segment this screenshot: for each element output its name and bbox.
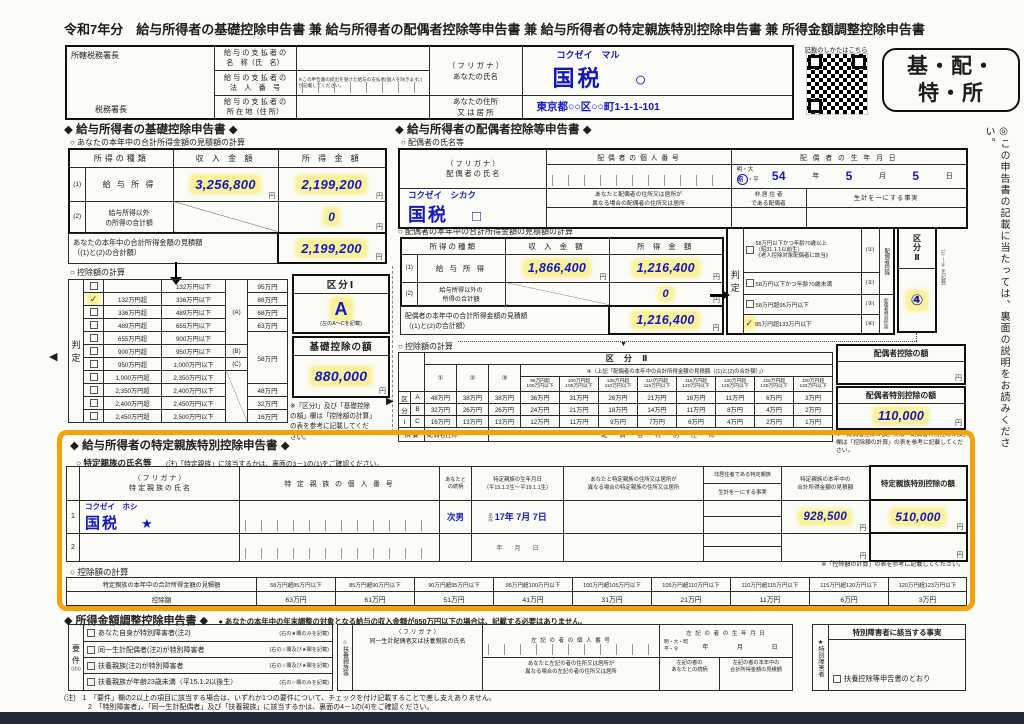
sub-range: 130万円超 133万円以下 bbox=[794, 377, 833, 392]
day-label: 日 bbox=[946, 171, 953, 181]
tokutei-address-field[interactable] bbox=[564, 500, 704, 533]
requirement-row-0[interactable]: あなた自身が特別障害者(注2)(右の★欄のみを記載) bbox=[84, 625, 333, 642]
tokutei-nonresident-field-2[interactable] bbox=[704, 533, 782, 561]
col-revenue: 収 入 金 額 bbox=[173, 149, 278, 167]
basic-judgment-checkbox-5[interactable] bbox=[84, 345, 104, 358]
tokutei-name: 国税 bbox=[85, 515, 119, 532]
amount: 6万円 bbox=[810, 592, 889, 606]
basic-salary-revenue[interactable]: 3,256,800円 bbox=[173, 167, 278, 201]
form-title: 令和7年分 給与所得者の基礎控除申告書 兼 給与所得者の配偶者控除等申告書 兼 … bbox=[64, 19, 1014, 38]
tokutei-income-header: 特定親族の本年中の 合計所得金額の見積額 bbox=[782, 466, 870, 500]
spouse-other-income[interactable]: 0円 bbox=[609, 282, 723, 306]
summary-spouse-special-deduction: 配 偶 者 特 別 控 除 bbox=[489, 428, 833, 442]
basic-salary-income[interactable]: 2,199,200円 bbox=[278, 167, 386, 201]
check-mark: ✓ bbox=[89, 294, 99, 304]
spouse-mynumber-field[interactable] bbox=[546, 164, 731, 188]
adjust-requirements-table: 要 件(注1) あなた自身が特別障害者(注2)(右の★欄のみを記載) 同一生計配… bbox=[68, 624, 333, 691]
spouse-salary-revenue[interactable]: 1,866,400円 bbox=[505, 254, 609, 282]
payer-number-label: 給 与 の 支 払 者 の 法 人 番 号 bbox=[214, 70, 296, 95]
section-divider bbox=[392, 266, 393, 432]
tax-office-bottom-label: 税務署長 bbox=[95, 104, 127, 115]
your-name-label: （ フ リ ガ ナ ） あなたの氏名 bbox=[429, 46, 522, 95]
kubun1-note: (左のA～Cを記載) bbox=[294, 320, 388, 327]
spouse-salary-income[interactable]: 1,216,400円 bbox=[609, 254, 723, 282]
spouse-name-label: （ フ リ ガ ナ ） 配 偶 者 の 氏 名 bbox=[399, 149, 546, 188]
row-number: 1 bbox=[67, 500, 80, 533]
tokutei-relation-field-2[interactable] bbox=[440, 533, 472, 561]
row-number-col bbox=[67, 466, 80, 500]
basic-deduction-field[interactable]: 880,000円 bbox=[293, 355, 389, 397]
spouse-judgment-checkbox-2 bbox=[746, 300, 754, 308]
yen-unit: 円 bbox=[376, 222, 383, 232]
spouse-section-title: ◆ 給与所得者の配偶者控除等申告書 ◆ bbox=[395, 121, 592, 137]
amount: 16万円 bbox=[248, 410, 288, 423]
mynumber-ticks bbox=[488, 644, 654, 655]
sub-range: 95万円超 100万円以下 bbox=[521, 377, 560, 392]
req-note-label: (注1) bbox=[71, 666, 80, 672]
col-2: ② bbox=[457, 365, 489, 392]
row-key-B: B bbox=[411, 404, 425, 416]
header-table: 所轄税務署長 税務署長 給 与 の 支 払 者 の 名 称（氏 名） （ フ リ… bbox=[65, 45, 794, 120]
range-lo: 900万円超 bbox=[104, 345, 162, 358]
down-arrow: ▼ bbox=[620, 341, 627, 348]
range: 120万円超123万円以下 bbox=[889, 578, 967, 592]
cell: 11万円 bbox=[677, 404, 716, 416]
basic-total-row: あなたの本年中の合計所得金額の見積額 （(1)と(2)の合計額） 2,199,2… bbox=[68, 232, 387, 264]
basic-deduction-title: 基礎控除の額 bbox=[293, 337, 389, 355]
amount: 63万円 bbox=[248, 319, 288, 332]
range-lo bbox=[104, 280, 162, 293]
spouse-judgment-row-3[interactable]: ✓95万円超133万円以下 bbox=[743, 314, 861, 334]
tokutei-calc-table: 特定親族の本年中の合計所得金額の見積額 58万円超85万円以下85万円超90万円… bbox=[66, 577, 967, 606]
tokutei-table: （ フ リ ガ ナ ） 特 定 親 族 の 氏 名 特 定 親 族 の 個 人 … bbox=[66, 465, 968, 562]
row-group-label: 区 bbox=[399, 392, 411, 404]
spouse-income-table: 所得の種類 収 入 金 額 所 得 金 額 (1) 給 与 所 得 1,866,… bbox=[400, 237, 724, 307]
cell: 21万円 bbox=[638, 392, 677, 404]
tax-office-top-label: 所轄税務署長 bbox=[71, 50, 119, 61]
dependent-address-field[interactable]: あなたと左記の者の住所又は居所が 異なる場合の左記の者の住所又は居所 bbox=[483, 658, 660, 691]
range: 85万円超90万円以下 bbox=[336, 578, 415, 592]
basic-other-income[interactable]: 0円 bbox=[278, 201, 386, 233]
range: 90万円超95万円以下 bbox=[415, 578, 494, 592]
amount: 61万円 bbox=[336, 592, 415, 606]
range-hi: 2,450万円以下 bbox=[162, 397, 226, 410]
amount: 41万円 bbox=[494, 592, 573, 606]
cell: 11万円 bbox=[560, 416, 599, 428]
requirements-label: 要 件(注1) bbox=[69, 625, 84, 691]
sub-range: 115万円超 120万円以下 bbox=[677, 377, 716, 392]
disability-fact-field[interactable] bbox=[829, 640, 965, 671]
tokutei-ref-note: ※「控除額の計算」の表を参考に記載してください。 bbox=[560, 559, 964, 568]
row-label: 給 与 所 得 bbox=[417, 254, 505, 282]
payer-address-label: 給 与 の 支 払 者 の 所 在 地（住 所） bbox=[214, 95, 296, 119]
spouse-total-label: 配偶者の本年中の合計所得金額の見積額 （(1)と(2)の合計額） bbox=[401, 306, 609, 334]
row-label: 給与所得以外 の所得の合計額 bbox=[85, 201, 173, 233]
amount: 32万円 bbox=[248, 397, 288, 410]
range-hi: 2,500万円以下 bbox=[162, 410, 226, 423]
range-lo: 2,400万円超 bbox=[104, 397, 162, 410]
requirement-checkbox-2 bbox=[87, 662, 95, 670]
basic-note: ※「区分Ⅰ」及び「基礎控除 の額」欄は「控除額の計算」 の表を参考に記載してくだ… bbox=[290, 402, 394, 443]
basic-calc-title: ○ あなたの本年中の合計所得金額の見積額の計算 bbox=[70, 137, 245, 148]
spouse-deduction-table: 区 分 Ⅱ ① ② ③ ④（上記「配偶者の本年中の合計所得金額の見積額（(1)と… bbox=[398, 352, 833, 442]
spouse-total-value[interactable]: 1,216,400円 bbox=[609, 306, 723, 334]
tokutei-birthday-field-2[interactable]: 年 月 日 bbox=[472, 533, 564, 561]
spouse-note: ※「配偶者控除の額」又は「配偶者特別控除の額」欄は「控除額の計算」の表を参考に記… bbox=[836, 431, 968, 455]
range-hi: 655万円以下 bbox=[162, 319, 226, 332]
cell: 24万円 bbox=[521, 404, 560, 416]
row-key-A: A bbox=[411, 392, 425, 404]
dotted-connector-v bbox=[916, 333, 917, 341]
marker: (②) bbox=[861, 272, 879, 294]
range-lo: 655万円超 bbox=[104, 332, 162, 345]
row-group-label: 分 bbox=[399, 404, 411, 416]
cell: 6万円 bbox=[677, 416, 716, 428]
spouse-nonresident-label: 非 居 住 者 である配偶者 bbox=[731, 188, 806, 208]
your-address-field[interactable]: 東京都○○区○○町1-1-1-101 bbox=[522, 95, 793, 119]
your-name[interactable]: 国税 bbox=[553, 66, 603, 91]
range-hi: 950万円以下 bbox=[162, 345, 226, 358]
cell: 13万円 bbox=[489, 416, 521, 428]
kubun1-value: A bbox=[332, 299, 351, 319]
cell: 7万円 bbox=[638, 416, 677, 428]
yen-unit: 円 bbox=[957, 522, 964, 532]
calc-amount-label: 控除額 bbox=[67, 592, 257, 606]
payer-address-field[interactable] bbox=[296, 95, 429, 119]
spouse-judgment-table: 判定 58万円以下かつ年齢70歳以上 （昭31.1.1以前生） 《老人控除対象配… bbox=[726, 227, 895, 335]
kubun1-title: 区分Ⅰ bbox=[293, 275, 389, 293]
tokutei-deduction-header: 特定親族特別控除の額 bbox=[870, 466, 967, 500]
spouse-name-field[interactable]: コクゼイ シカク 国税□ bbox=[399, 188, 546, 228]
mynumber-ticks bbox=[245, 520, 434, 531]
spouse-birth-day[interactable]: 5 bbox=[912, 169, 919, 183]
sub-range: 120万円超 125万円以下 bbox=[716, 377, 755, 392]
your-address[interactable]: 東京都○○区○○町1-1-1-101 bbox=[523, 101, 660, 113]
cell: 16万円 bbox=[677, 392, 716, 404]
range: 105万円超110万円以下 bbox=[652, 578, 731, 592]
yen-unit: 円 bbox=[600, 272, 607, 282]
adjust-dependent-table: ☆扶養親族等 （ フ リ ガ ナ ） 同一生計配偶者又は扶養親族の氏名 左 記 … bbox=[337, 624, 793, 691]
dependent-group-label: ☆扶養親族等 bbox=[338, 625, 353, 691]
yen-unit: 円 bbox=[955, 418, 962, 428]
marker-C: (C) bbox=[226, 358, 248, 371]
tokutei-deduction-field[interactable]: 510,000円 bbox=[870, 500, 967, 533]
marker: (④) bbox=[861, 314, 879, 334]
requirement-row-2[interactable]: 扶養親族(注2)が特別障害者(右の☆欄及び★欄を記載) bbox=[84, 658, 333, 674]
basic-judgment-checkbox-7[interactable] bbox=[84, 371, 104, 384]
basic-judgment-checkbox-0[interactable] bbox=[84, 280, 104, 293]
tokutei-mynumber-field-2[interactable] bbox=[240, 533, 440, 561]
row-no: (2) bbox=[69, 201, 85, 233]
tokutei-income-field[interactable]: 928,500円 bbox=[782, 500, 870, 533]
basic-total-value[interactable]: 2,199,200円 bbox=[278, 233, 386, 263]
check-mark: ✓ bbox=[745, 318, 755, 328]
range-lo: 132万円超 bbox=[104, 293, 162, 306]
range-lo: 2,350万円超 bbox=[104, 384, 162, 397]
your-name-field[interactable]: コクゼイ マル 国税 ○ bbox=[522, 46, 793, 95]
spouse-nonresident-field[interactable] bbox=[731, 208, 806, 228]
cell: 3万円 bbox=[794, 392, 833, 404]
col-revenue: 収 入 金 額 bbox=[505, 238, 609, 254]
col-income: 所 得 金 額 bbox=[609, 238, 723, 254]
range-lo: 1,000万円超 bbox=[104, 371, 162, 384]
amount: 88万円 bbox=[248, 293, 288, 306]
amount: 11万円 bbox=[731, 592, 810, 606]
era-selected[interactable]: 昭 bbox=[737, 174, 748, 185]
day-label: 日 bbox=[772, 642, 778, 651]
spouse-name: 国税 bbox=[408, 205, 448, 225]
tokutei-address-field-2[interactable] bbox=[564, 533, 704, 561]
your-furigana[interactable]: コクゼイ マル bbox=[523, 48, 793, 61]
range: 100万円超105万円以下 bbox=[573, 578, 652, 592]
row-no: (1) bbox=[69, 167, 85, 201]
cell: 1万円 bbox=[794, 416, 833, 428]
requirement-row-3[interactable]: 扶養親族が年齢23歳未満（平15.1.2以後生）(右の☆欄のみを記載) bbox=[84, 674, 333, 691]
yen-unit: 円 bbox=[269, 191, 276, 201]
tokutei-name-field-2[interactable] bbox=[80, 533, 240, 561]
tokutei-name-header: （ フ リ ガ ナ ） 特 定 親 族 の 氏 名 bbox=[80, 466, 240, 500]
tokutei-relation-header: あなたと の続柄 bbox=[440, 466, 472, 500]
tokutei-furigana: コクゼイ ホシ bbox=[80, 501, 239, 512]
dependent-mynumber-field[interactable]: 左 記 の 者 の 個 人 番 号 bbox=[483, 625, 660, 658]
yen-unit: 円 bbox=[955, 373, 962, 383]
cell: 26万円 bbox=[457, 404, 489, 416]
cell: 26万円 bbox=[599, 392, 638, 404]
spouse-birth-month[interactable]: 5 bbox=[846, 169, 853, 183]
disability-group-label: ★特別障害者 bbox=[813, 625, 829, 691]
sub-range: 125万円超 130万円以下 bbox=[755, 377, 794, 392]
amount: 95万円 bbox=[248, 280, 288, 293]
row-key-C: C bbox=[411, 416, 425, 428]
adjust-disability-table: ★特別障害者 特別障害者に該当する事実 扶養控除等申告書のとおり bbox=[812, 624, 966, 691]
basic-judgment-checkbox-4[interactable] bbox=[84, 332, 104, 345]
table-kubun2-header: 区 分 Ⅱ bbox=[425, 353, 833, 365]
range: 115万円超120万円以下 bbox=[810, 578, 889, 592]
range: 95万円超100万円以下 bbox=[494, 578, 573, 592]
spouse-deduction-title: 配偶者控除の額 bbox=[837, 345, 965, 361]
cell: 18万円 bbox=[599, 404, 638, 416]
basic-deduction-calc-title: ○ 控除額の計算 bbox=[70, 267, 125, 278]
kubun2-field[interactable]: ④ bbox=[898, 268, 936, 332]
spouse-birthday-label: 配 偶 者 の 生 年 月 日 bbox=[731, 149, 967, 164]
range-hi: 489万円以下 bbox=[162, 306, 226, 319]
dependent-relation-field[interactable]: 左記の者の あなたとの続柄 bbox=[660, 658, 720, 691]
era-after: ・平 bbox=[748, 177, 759, 183]
spouse-special-deduction-box: 配偶者特別控除の額 110,000円 bbox=[836, 386, 966, 430]
basic-judgment-checkbox-9[interactable] bbox=[84, 397, 104, 410]
spouse-judgment-row-2[interactable]: 58万円超95万円以下 bbox=[743, 294, 861, 314]
spouse-address-field[interactable] bbox=[546, 208, 731, 228]
dependent-birthday-field[interactable]: 左 記 の 者 の 生 年 月 日 明・大・昭平・令 年月日 bbox=[660, 625, 793, 658]
kubun2-box: 区 分 Ⅱ ④ bbox=[897, 227, 937, 333]
row-no: (1) bbox=[401, 254, 417, 282]
sub-range: 110万円超 115万円以下 bbox=[638, 377, 677, 392]
payer-name-label: 給 与 の 支 払 者 の 名 称（氏 名） bbox=[214, 46, 296, 70]
range: 110万円超115万円以下 bbox=[731, 578, 810, 592]
corner-cell bbox=[399, 353, 425, 392]
tax-form-page: 令和7年分 給与所得者の基礎控除申告書 兼 給与所得者の配偶者控除等申告書 兼 … bbox=[0, 0, 1024, 724]
yen-unit: 円 bbox=[713, 272, 720, 282]
tokutei-address-header: あなたと特定親族の住所又は居所が 異なる場合の特定親族の住所又は居所 bbox=[564, 466, 704, 500]
cell: 38万円 bbox=[457, 392, 489, 404]
spouse-judgment-checkbox-1 bbox=[746, 279, 754, 287]
basic-income-table: 所得の種類 収 入 金 額 所 得 金 額 (1) 給 与 所 得 3,256,… bbox=[68, 148, 387, 234]
col-type: 所得の種類 bbox=[401, 238, 505, 254]
basic-judgment-checkbox-10[interactable] bbox=[84, 410, 104, 423]
range-lo: 2,450万円超 bbox=[104, 410, 162, 423]
range-lo: 950万円超 bbox=[104, 358, 162, 371]
basic-deduction-box: 基礎控除の額 880,000円 bbox=[292, 336, 390, 398]
spouse-deduction-box: 配偶者控除の額 円 bbox=[836, 344, 966, 385]
basic-total-label: あなたの本年中の合計所得金額の見積額 （(1)と(2)の合計額） bbox=[69, 233, 278, 263]
qr-code bbox=[807, 54, 867, 114]
dependent-income-field[interactable]: 左記の者の本年中の 合計所得金額の見積額 bbox=[720, 658, 793, 691]
tokutei-income-field-2[interactable]: 円 bbox=[782, 533, 870, 561]
cell: 32万円 bbox=[425, 404, 457, 416]
cell: 21万円 bbox=[560, 404, 599, 416]
spouse-deduction-field[interactable]: 円 bbox=[837, 361, 965, 384]
range: 58万円超85万円以下 bbox=[257, 578, 336, 592]
spouse-special-deduction-title: 配偶者特別控除の額 bbox=[837, 387, 965, 403]
your-address-label: あなたの住所 又 は 居 所 bbox=[429, 95, 522, 119]
cell: 36万円 bbox=[521, 392, 560, 404]
side-note: ◎この申告書の記載に当たっては、裏面の説明をお読みください。 bbox=[981, 126, 1011, 471]
tokutei-name-mark: ★ bbox=[141, 516, 153, 531]
kubun1-box: 区分Ⅰ A (左のA～Cを記載) bbox=[292, 274, 390, 334]
year-label: 年 bbox=[812, 171, 819, 181]
tokutei-name-field[interactable]: コクゼイ ホシ 国税★ bbox=[80, 500, 240, 533]
cell: 12万円 bbox=[521, 416, 560, 428]
tokutei-mynumber-header: 特 定 親 族 の 個 人 番 号 bbox=[240, 466, 440, 500]
cell: 31万円 bbox=[560, 392, 599, 404]
spouse-name-title: ○ 配偶者の氏名等 bbox=[401, 137, 464, 148]
yen-unit: 円 bbox=[376, 252, 383, 262]
col-income: 所 得 金 額 bbox=[278, 149, 386, 167]
dependent-name-field[interactable]: （ フ リ ガ ナ ） 同一生計配偶者又は扶養親族の氏名 bbox=[353, 625, 483, 691]
disability-fact-check-row[interactable]: 扶養控除等申告書のとおり bbox=[829, 671, 965, 687]
calc-row-label: 特定親族の本年中の合計所得金額の見積額 bbox=[67, 578, 257, 592]
dotted-connector bbox=[404, 341, 917, 342]
payer-number-field[interactable]: ※この申告書の提出を受けた給与の支払者(個人を除きます。)が記載してください。 bbox=[296, 70, 429, 95]
basic-judgment-checkbox-1[interactable]: ✓ bbox=[84, 293, 104, 306]
row-label: 給 与 所 得 bbox=[85, 167, 173, 201]
tokutei-nonresident-field[interactable] bbox=[704, 500, 782, 533]
side-label-haigusha-koujo: 配偶者控除 bbox=[879, 228, 894, 294]
spouse-living-field[interactable] bbox=[806, 208, 967, 228]
tokutei-mynumber-field[interactable] bbox=[240, 500, 440, 533]
range-hi: 2,350万円以下 bbox=[162, 371, 226, 384]
qr-caption: 記載のしかたはこちら bbox=[792, 45, 880, 54]
tokutei-deduction-field-2[interactable]: 円 bbox=[870, 533, 967, 561]
disability-fact-title: 特別障害者に該当する事実 bbox=[829, 625, 965, 640]
basic-section-title: ◆ 給与所得者の基礎控除申告書 ◆ bbox=[64, 121, 238, 137]
yen-unit: 円 bbox=[713, 323, 720, 333]
payer-name-field[interactable] bbox=[296, 46, 429, 70]
row-number: 2 bbox=[67, 533, 80, 561]
spouse-special-deduction-field[interactable]: 110,000円 bbox=[837, 403, 965, 429]
range-lo: 336万円超 bbox=[104, 306, 162, 319]
summary-spouse-deduction: 配偶者控除 bbox=[425, 428, 489, 442]
range-hi: 336万円以下 bbox=[162, 293, 226, 306]
tokutei-section-title: ◆ 給与所得者の特定親族特別控除申告書 ◆ bbox=[70, 437, 290, 453]
cell: 16万円 bbox=[425, 416, 457, 428]
range-hi: 2,400万円以下 bbox=[162, 384, 226, 397]
cell: 9万円 bbox=[599, 416, 638, 428]
requirement-checkbox-1 bbox=[87, 646, 95, 654]
marker-B: (B) bbox=[226, 345, 248, 358]
spouse-birth-year[interactable]: 54 bbox=[772, 169, 786, 183]
era-options-1: 明・大・昭 bbox=[664, 640, 688, 646]
marker: (①) bbox=[861, 228, 879, 272]
col-3: ③ bbox=[489, 365, 521, 392]
yen-unit: 円 bbox=[379, 386, 386, 396]
range-lo: 489万円超 bbox=[104, 319, 162, 332]
sub-range: 100万円超 105万円以下 bbox=[560, 377, 599, 392]
kubun2-note: (①～④を記載) bbox=[940, 250, 947, 285]
col-4-header: ④（上記「配偶者の本年中の合計所得金額の見積額（(1)と(2)の合計額）」） bbox=[521, 365, 833, 377]
month-label: 月 bbox=[879, 171, 886, 181]
margin-marker-left: ◀ bbox=[49, 350, 57, 363]
diagonal-cell bbox=[173, 201, 278, 233]
judgment-label: 判定 bbox=[727, 228, 743, 334]
spouse-furigana: コクゼイ シカク bbox=[400, 189, 546, 201]
kubun2-value: ④ bbox=[908, 292, 927, 309]
row-label: 給与所得以外の 所得の合計額 bbox=[417, 282, 505, 306]
sub-range: 105万円超 110万円以下 bbox=[599, 377, 638, 392]
kubun1-field[interactable]: A (左のA～Cを記載) bbox=[293, 293, 389, 333]
tax-office-cell: 所轄税務署長 税務署長 bbox=[66, 46, 214, 119]
yen-unit: 円 bbox=[860, 523, 867, 533]
col-1: ① bbox=[425, 365, 457, 392]
basic-judgment-checkbox-3[interactable] bbox=[84, 319, 104, 332]
cell: 11万円 bbox=[716, 392, 755, 404]
requirement-row-1[interactable]: 同一生計配偶者(注2)が特別障害者(右の☆欄及び★欄を記載) bbox=[84, 642, 333, 658]
month-label: 月 bbox=[737, 642, 743, 651]
tokutei-relation-field[interactable]: 次男 bbox=[440, 500, 472, 533]
basic-judgment-checkbox-6[interactable] bbox=[84, 358, 104, 371]
row-no: (2) bbox=[401, 282, 417, 306]
spouse-judgment-row-1[interactable]: 58万円以下かつ年齢70歳未満 bbox=[743, 272, 861, 294]
spouse-judgment-row-0[interactable]: 58万円以下かつ年齢70歳以上 （昭31.1.1以前生） 《老人控除対象配偶者に… bbox=[743, 228, 861, 272]
amount: 48万円 bbox=[248, 384, 288, 397]
tokutei-birthday-field[interactable]: 平 成 17年 7月 7日 bbox=[472, 500, 564, 533]
cell: 8万円 bbox=[716, 404, 755, 416]
amount: 3万円 bbox=[889, 592, 967, 606]
basic-judgment-checkbox-2[interactable] bbox=[84, 306, 104, 319]
cell: 6万円 bbox=[755, 392, 794, 404]
spouse-name-mark: □ bbox=[472, 208, 481, 225]
yen-unit: 円 bbox=[376, 191, 383, 201]
spouse-deduction-calc-title: ○ 控除額の計算 bbox=[398, 341, 457, 352]
era-label: 平 成 bbox=[488, 514, 493, 523]
bottom-bar bbox=[0, 712, 1024, 724]
spouse-calc-title: ○ 配偶者の本年中の合計所得金額の見積額の計算 bbox=[398, 226, 573, 237]
amount: 51万円 bbox=[415, 592, 494, 606]
range-hi: 1,000万円以下 bbox=[162, 358, 226, 371]
flow-arrow-line bbox=[175, 262, 177, 278]
summary-label: 摘 要 bbox=[399, 428, 425, 442]
marker: (③) bbox=[861, 294, 879, 314]
your-name-mark: ○ bbox=[634, 69, 646, 91]
requirement-checkbox-3 bbox=[87, 678, 95, 686]
amount: 31万円 bbox=[573, 592, 652, 606]
basic-judgment-checkbox-8[interactable] bbox=[84, 384, 104, 397]
kubun2-title: 区 分 Ⅱ bbox=[898, 228, 936, 268]
cell: 26万円 bbox=[489, 404, 521, 416]
spouse-birthday-field[interactable]: 明・大 昭・平 54年 5月 5日 bbox=[731, 164, 967, 188]
tokutei-nonresident-header: 非居住者である特定親族 bbox=[704, 466, 782, 483]
spouse-name-table: （ フ リ ガ ナ ） 配 偶 者 の 氏 名 配 偶 者 の 個 人 番 号 … bbox=[398, 148, 968, 229]
